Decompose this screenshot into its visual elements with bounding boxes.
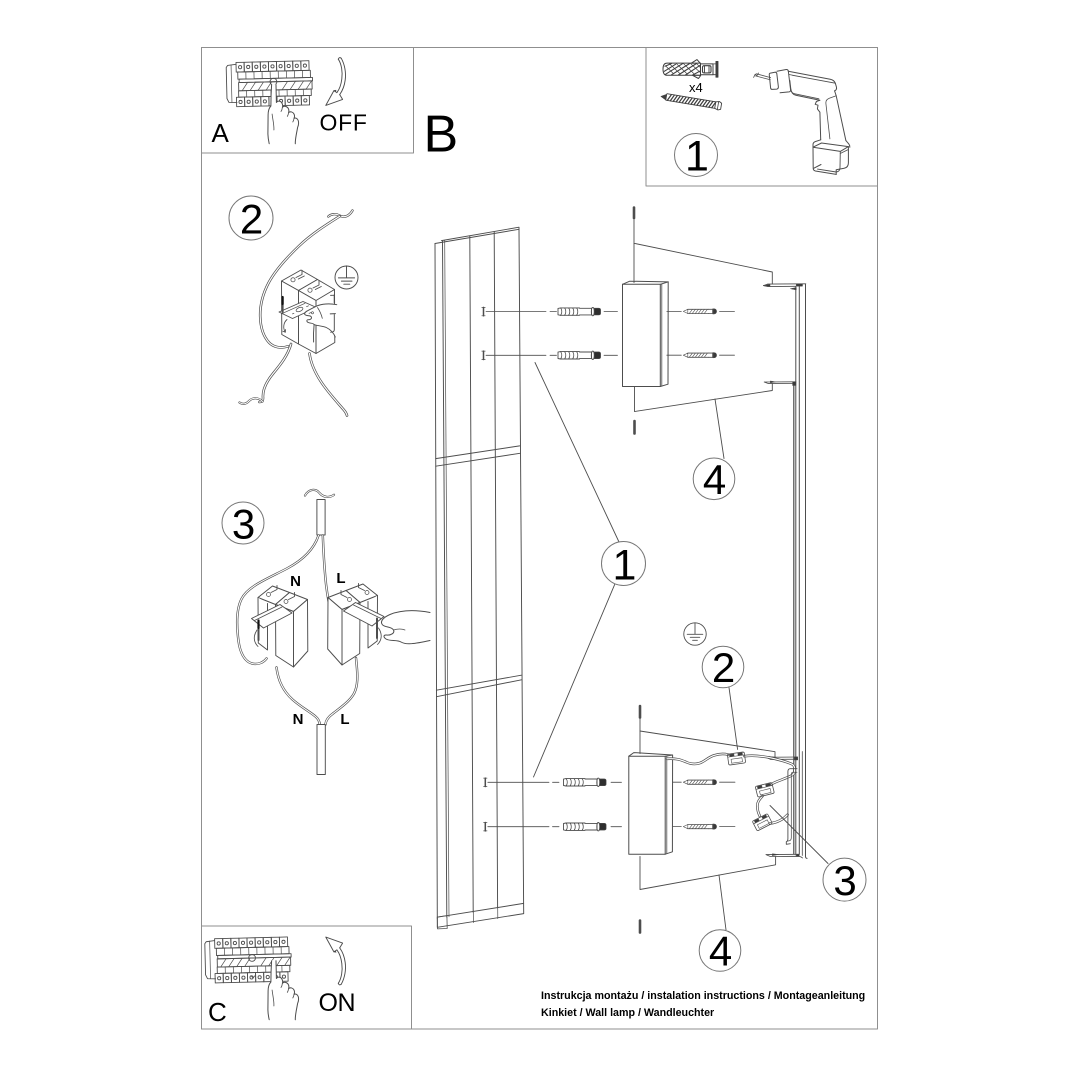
svg-text:2: 2: [712, 644, 735, 691]
svg-text:1: 1: [613, 541, 637, 589]
svg-text:1: 1: [685, 133, 709, 181]
svg-text:OFF: OFF: [320, 110, 368, 136]
svg-text:4: 4: [709, 928, 732, 975]
svg-text:L: L: [336, 570, 345, 587]
svg-text:A: A: [212, 118, 230, 148]
svg-text:B: B: [424, 106, 459, 164]
svg-text:Kinkiet / Wall lamp / Wandleuc: Kinkiet / Wall lamp / Wandleuchter: [541, 1007, 714, 1019]
svg-text:Instrukcja montażu / instalati: Instrukcja montażu / instalation instruc…: [541, 990, 865, 1002]
svg-text:N: N: [290, 573, 301, 590]
svg-text:4: 4: [703, 456, 726, 503]
svg-text:N: N: [293, 711, 304, 728]
svg-text:ON: ON: [319, 989, 356, 1017]
svg-text:C: C: [208, 997, 227, 1027]
svg-text:3: 3: [833, 857, 856, 904]
svg-text:2: 2: [240, 196, 263, 243]
svg-text:L: L: [340, 711, 349, 728]
svg-text:x4: x4: [689, 80, 703, 95]
svg-text:3: 3: [232, 500, 255, 547]
